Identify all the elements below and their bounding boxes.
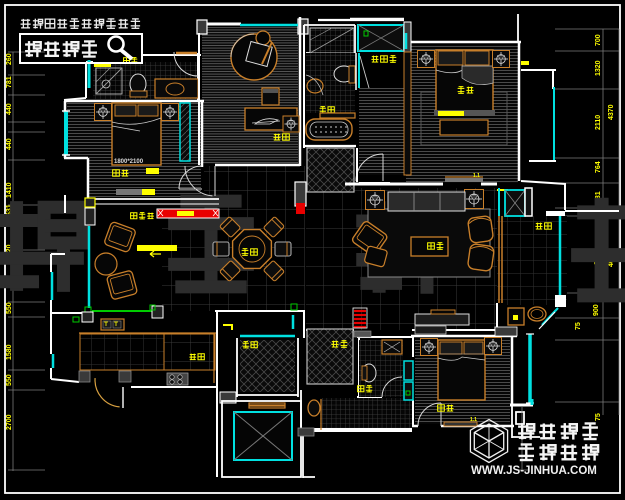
- svg-text:764: 764: [595, 161, 602, 173]
- svg-text:550: 550: [6, 302, 13, 314]
- svg-text:75: 75: [595, 413, 602, 421]
- svg-text:260: 260: [6, 53, 13, 65]
- svg-text:440: 440: [6, 103, 13, 115]
- svg-text:1.1: 1.1: [470, 417, 477, 423]
- svg-text:1410: 1410: [6, 182, 13, 198]
- svg-text:1580: 1580: [6, 344, 13, 360]
- svg-text:1.1: 1.1: [473, 173, 480, 179]
- svg-text:4370: 4370: [608, 104, 615, 120]
- svg-text:550: 550: [6, 374, 13, 386]
- svg-text:700: 700: [595, 34, 602, 46]
- svg-text:1320: 1320: [595, 60, 602, 76]
- svg-text:2110: 2110: [595, 115, 602, 130]
- svg-text:440: 440: [6, 138, 13, 150]
- svg-text:900: 900: [593, 304, 600, 316]
- svg-text:781: 781: [6, 76, 13, 88]
- svg-text:1800*2100: 1800*2100: [114, 159, 144, 165]
- svg-text:WWW.JS-JINHUA.COM: WWW.JS-JINHUA.COM: [471, 465, 597, 477]
- svg-text:2700: 2700: [6, 414, 13, 430]
- svg-text:75: 75: [575, 322, 582, 330]
